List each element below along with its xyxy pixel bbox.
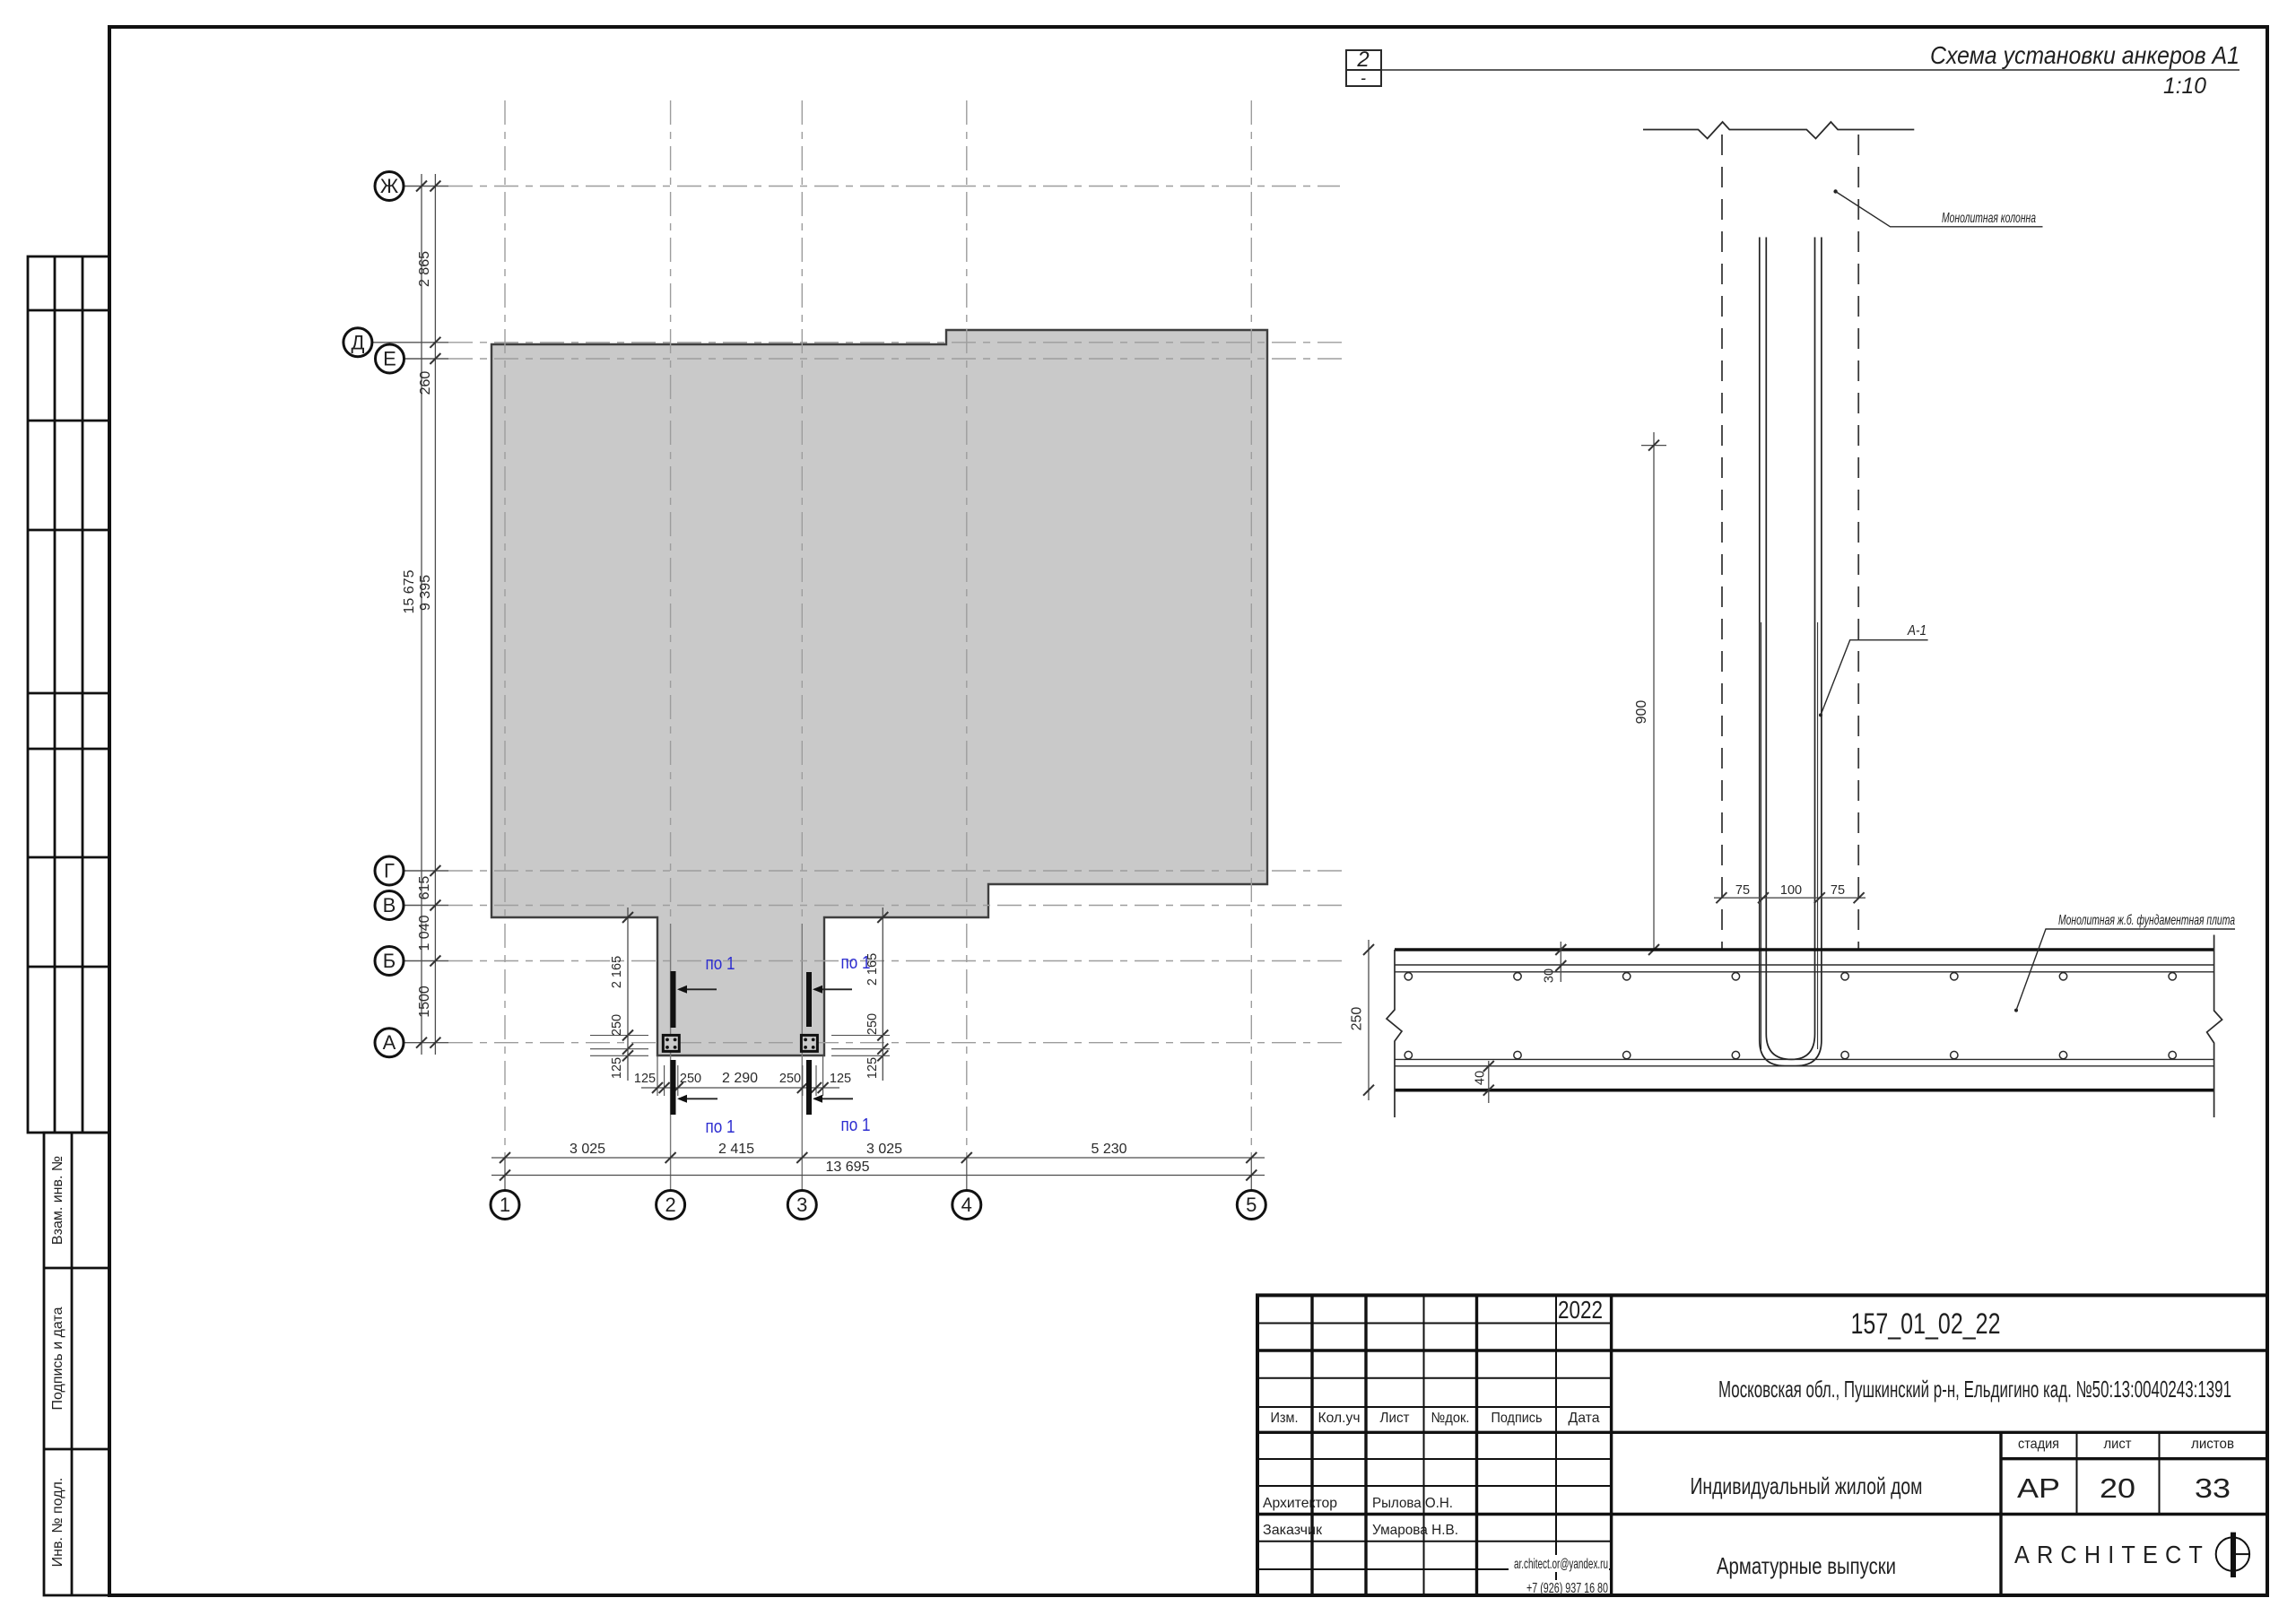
svg-text:75: 75 [1735,883,1750,898]
svg-text:75: 75 [1831,883,1845,898]
svg-text:по 1: по 1 [841,953,871,973]
svg-text:Подпись и дата: Подпись и дата [50,1307,65,1410]
svg-text:по 1: по 1 [706,1117,735,1137]
svg-text:+7 (926) 937 16 80: +7 (926) 937 16 80 [1526,1581,1608,1596]
svg-text:Г: Г [384,860,395,882]
svg-text:-: - [1361,69,1366,87]
svg-text:Кол.уч: Кол.уч [1318,1411,1361,1426]
svg-text:2: 2 [665,1194,675,1216]
svg-text:по 1: по 1 [706,954,735,974]
svg-text:Лист: Лист [1380,1411,1411,1426]
svg-text:В: В [383,894,396,916]
svg-text:Е: Е [383,348,396,370]
svg-text:№док.: №док. [1431,1411,1470,1426]
svg-text:по 1: по 1 [841,1116,871,1135]
svg-text:1: 1 [500,1194,510,1216]
svg-text:3 025: 3 025 [570,1142,605,1157]
svg-text:2 865: 2 865 [417,251,432,287]
svg-text:125: 125 [830,1072,851,1086]
svg-text:Архитектор: Архитектор [1263,1496,1337,1511]
svg-text:ARCHITECT: ARCHITECT [2014,1541,2210,1568]
svg-text:2 415: 2 415 [718,1142,754,1157]
svg-text:20: 20 [2100,1472,2135,1504]
svg-text:125: 125 [610,1057,624,1079]
svg-text:1:10: 1:10 [2163,74,2206,99]
svg-text:9 395: 9 395 [418,575,433,611]
svg-text:250: 250 [680,1072,701,1086]
svg-text:1500: 1500 [417,986,432,1018]
svg-text:615: 615 [417,876,432,900]
svg-text:Московская обл., Пушкинский р-: Московская обл., Пушкинский р-н, Ельдиги… [1718,1376,2231,1403]
svg-text:2 290: 2 290 [722,1071,758,1086]
svg-text:стадия: стадия [2018,1437,2059,1452]
svg-text:15 675: 15 675 [402,569,417,613]
svg-text:Монолитная колонна: Монолитная колонна [1942,211,2036,226]
svg-text:250: 250 [610,1014,624,1036]
svg-text:листов: листов [2191,1437,2234,1452]
svg-text:Рылова О.Н.: Рылова О.Н. [1372,1496,1453,1511]
svg-text:5: 5 [1246,1194,1257,1216]
svg-text:А: А [383,1031,396,1054]
svg-text:Умарова Н.В.: Умарова Н.В. [1372,1523,1458,1538]
svg-text:40: 40 [1474,1071,1488,1085]
svg-text:3: 3 [796,1194,807,1216]
svg-text:Подпись: Подпись [1492,1411,1543,1426]
svg-text:250: 250 [1350,1007,1365,1031]
svg-text:Б: Б [383,950,396,972]
svg-text:13 695: 13 695 [826,1159,870,1175]
svg-text:Арматурные выпуски: Арматурные выпуски [1717,1552,1896,1579]
svg-text:Ж: Ж [380,175,399,197]
svg-text:157_01_02_22: 157_01_02_22 [1851,1307,2001,1340]
svg-text:Индивидуальный жилой дом: Индивидуальный жилой дом [1691,1472,1923,1499]
svg-text:2 165: 2 165 [610,956,624,988]
svg-text:Инв. № подл.: Инв. № подл. [50,1478,65,1568]
svg-text:А-1: А-1 [1907,623,1926,638]
svg-text:5 230: 5 230 [1091,1142,1126,1157]
svg-text:260: 260 [418,371,433,395]
svg-text:лист: лист [2104,1437,2133,1452]
svg-text:4: 4 [961,1194,972,1216]
svg-text:Взам. инв. №: Взам. инв. № [50,1156,65,1245]
svg-text:2022: 2022 [1558,1296,1603,1324]
svg-text:АР: АР [2017,1472,2060,1504]
svg-text:1 040: 1 040 [417,915,432,951]
svg-text:900: 900 [1634,700,1649,725]
svg-text:Д: Д [351,331,364,353]
svg-text:30: 30 [1543,968,1557,983]
svg-text:ar.chitect.or@yandex.ru: ar.chitect.or@yandex.ru [1514,1557,1608,1572]
svg-text:250: 250 [865,1013,880,1035]
svg-text:Дата: Дата [1569,1411,1600,1426]
svg-text:Изм.: Изм. [1271,1411,1299,1426]
svg-text:33: 33 [2195,1472,2231,1504]
svg-text:Заказчик: Заказчик [1263,1523,1323,1538]
svg-text:2: 2 [1356,48,1369,72]
svg-text:250: 250 [779,1072,801,1086]
svg-text:3 025: 3 025 [866,1142,902,1157]
svg-text:Схема установки анкеров А1: Схема установки анкеров А1 [1930,41,2239,69]
svg-text:125: 125 [634,1072,656,1086]
svg-text:Монолитная ж.б. фундаментная п: Монолитная ж.б. фундаментная плита [2058,913,2235,928]
svg-text:125: 125 [865,1057,880,1079]
svg-text:100: 100 [1780,883,1802,898]
